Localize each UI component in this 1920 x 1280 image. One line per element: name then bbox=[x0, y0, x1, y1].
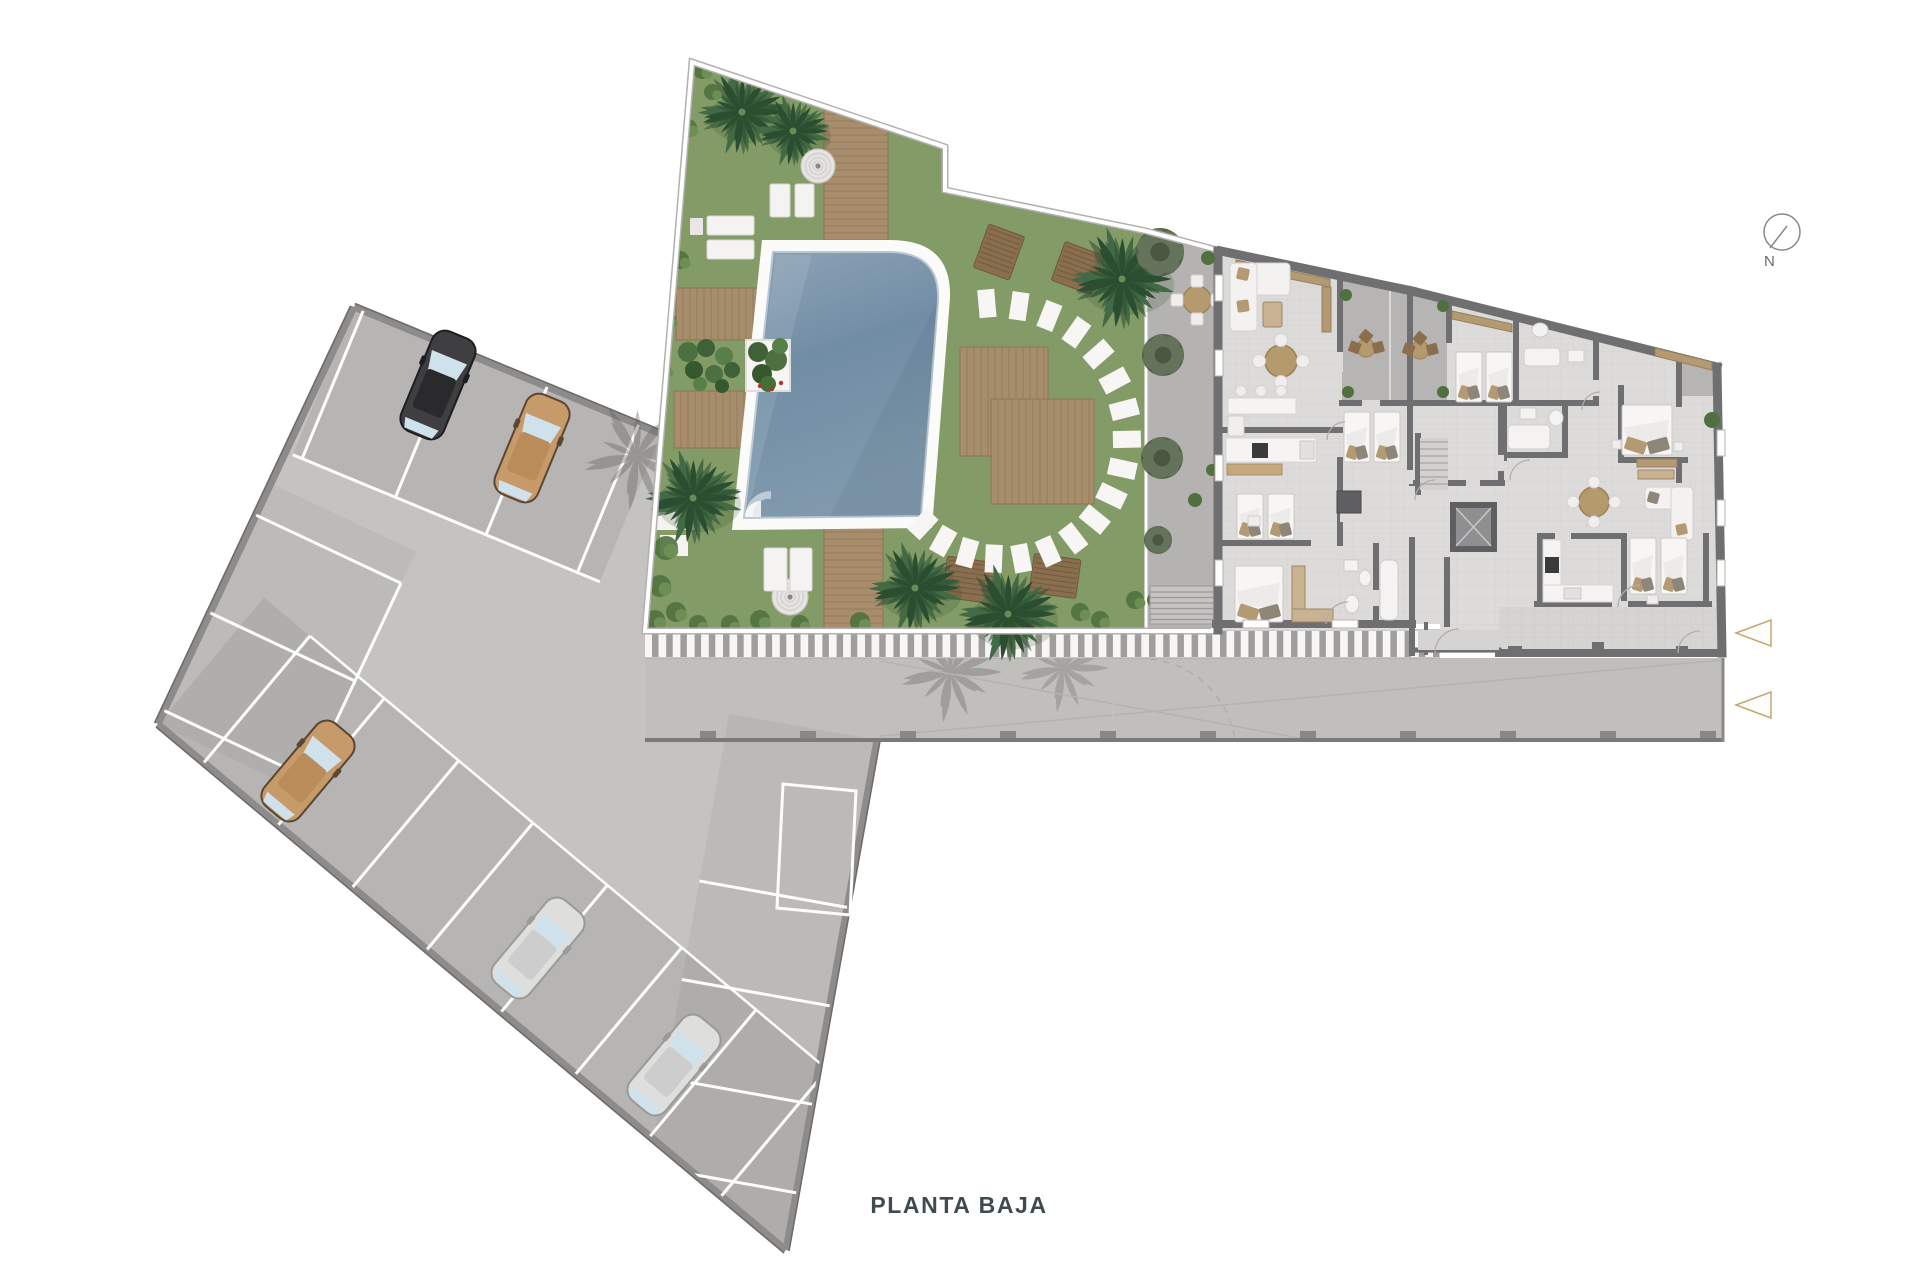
svg-text:PLANTA BAJA: PLANTA BAJA bbox=[870, 1192, 1047, 1218]
svg-text:N: N bbox=[1764, 253, 1775, 270]
